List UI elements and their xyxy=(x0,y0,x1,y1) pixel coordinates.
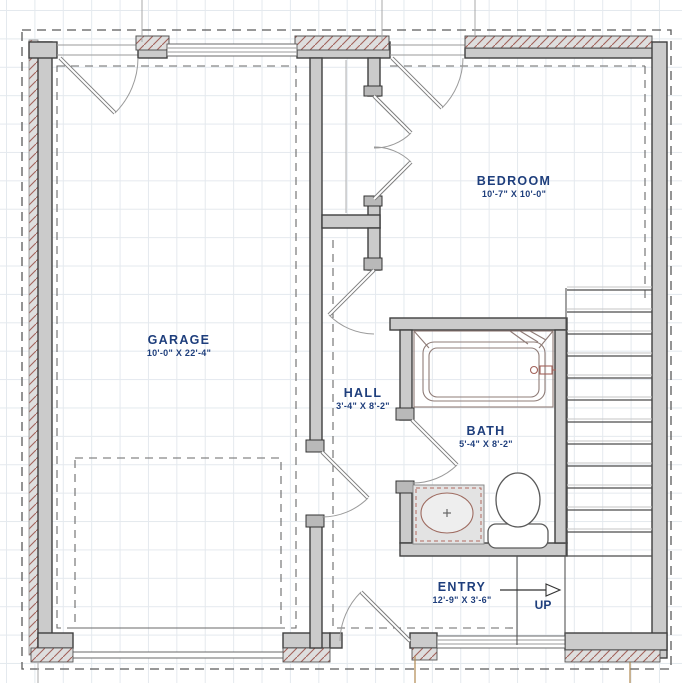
floor-plan-drawing xyxy=(0,0,682,683)
entry-front-door xyxy=(340,592,410,641)
garage-name: GARAGE xyxy=(109,333,249,347)
closet-double-doors xyxy=(374,96,411,199)
bath-label: BATH 5'-4" X 8'-2" xyxy=(428,424,544,450)
bathtub xyxy=(414,331,556,407)
sink-vanity xyxy=(413,485,484,544)
bedroom-label: BEDROOM 10'-7" X 10'-0" xyxy=(444,174,584,200)
bedroom-dims: 10'-7" X 10'-0" xyxy=(444,189,584,199)
entry-dims: 12'-9" X 3'-6" xyxy=(402,595,522,605)
toilet-bowl xyxy=(496,473,540,527)
floor-plan: GARAGE 10'-0" X 22'-4" BEDROOM 10'-7" X … xyxy=(0,0,682,683)
garage-door xyxy=(73,652,283,658)
hall-label: HALL 3'-4" X 8'-2" xyxy=(305,386,421,412)
garage-dims: 10'-0" X 22'-4" xyxy=(109,348,249,358)
bath-name: BATH xyxy=(428,424,544,438)
bedroom-name: BEDROOM xyxy=(444,174,584,188)
garage-hall-door xyxy=(322,452,368,517)
garage-label: GARAGE 10'-0" X 22'-4" xyxy=(109,333,249,359)
stairs-up-label: UP xyxy=(527,598,559,612)
bath-dims: 5'-4" X 8'-2" xyxy=(428,439,544,449)
tub-faucet-icon xyxy=(531,366,557,374)
entry-name: ENTRY xyxy=(402,580,522,594)
bedroom-hall-door xyxy=(329,270,374,334)
hall-name: HALL xyxy=(305,386,421,400)
hall-dims: 3'-4" X 8'-2" xyxy=(305,401,421,411)
entry-label: ENTRY 12'-9" X 3'-6" xyxy=(402,580,522,606)
toilet xyxy=(488,473,548,548)
